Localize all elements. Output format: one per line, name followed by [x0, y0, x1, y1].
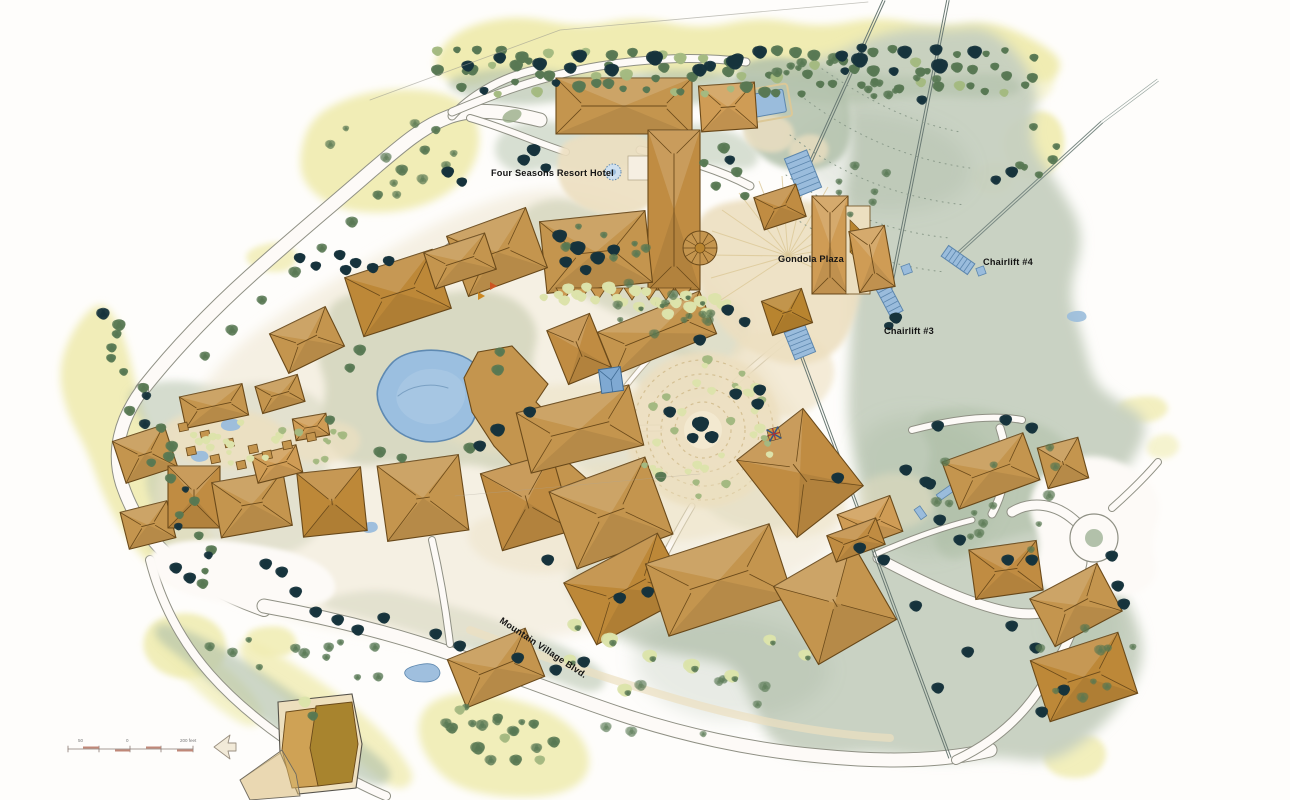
svg-text:200 feet: 200 feet [180, 738, 197, 743]
svg-text:Four Seasons Resort Hotel: Four Seasons Resort Hotel [491, 168, 614, 178]
svg-text:Chairlift #3: Chairlift #3 [884, 326, 934, 336]
svg-text:50: 50 [78, 738, 84, 743]
svg-text:Gondola Plaza: Gondola Plaza [778, 254, 845, 264]
svg-text:Chairlift #4: Chairlift #4 [983, 257, 1034, 267]
